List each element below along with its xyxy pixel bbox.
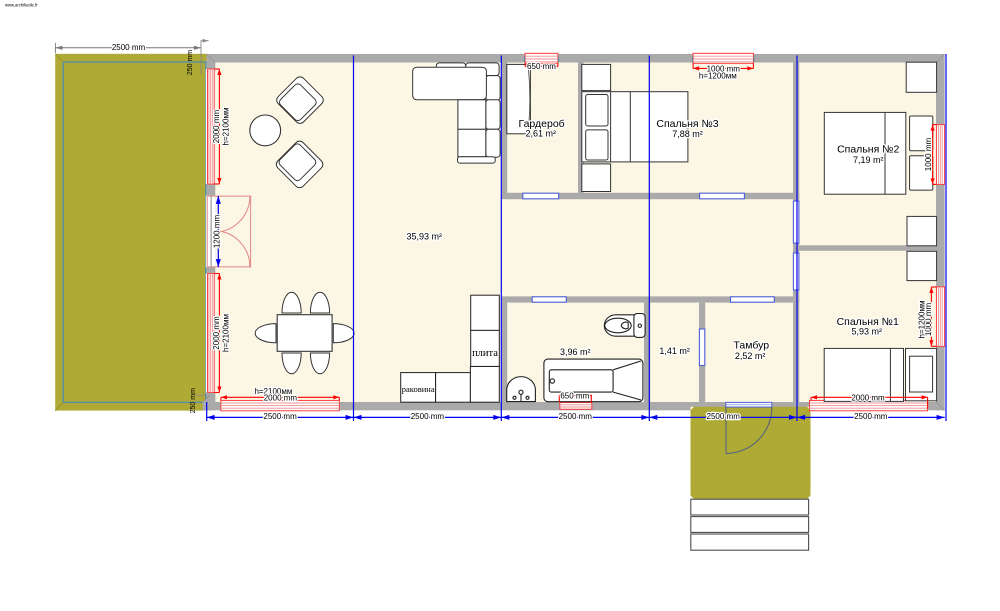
svg-text:Спальня №2: Спальня №2 — [837, 144, 899, 156]
svg-text:Спальня №3: Спальня №3 — [656, 118, 718, 130]
svg-text:1000 mm: 1000 mm — [924, 137, 933, 171]
svg-text:2500 mm: 2500 mm — [411, 412, 445, 421]
svg-text:h=1200мм: h=1200мм — [918, 301, 927, 339]
svg-text:2500 mm: 2500 mm — [112, 43, 146, 52]
svg-text:7,88 m²: 7,88 m² — [672, 129, 703, 139]
svg-text:1,41 m²: 1,41 m² — [659, 346, 690, 356]
svg-text:1200 mm: 1200 mm — [213, 214, 222, 248]
svg-text:2000 mm: 2000 mm — [212, 316, 221, 350]
svg-text:2500 mm: 2500 mm — [707, 412, 741, 421]
svg-text:650 mm: 650 mm — [527, 62, 556, 71]
svg-text:2000 mm: 2000 mm — [264, 394, 298, 403]
svg-text:35,93 m²: 35,93 m² — [407, 231, 443, 241]
svg-text:h=2100мм: h=2100мм — [221, 314, 230, 352]
svg-text:5,93 m²: 5,93 m² — [852, 326, 883, 336]
svg-text:h=1200мм: h=1200мм — [699, 72, 737, 81]
svg-text:2,52 m²: 2,52 m² — [735, 351, 766, 361]
svg-text:плита: плита — [472, 348, 498, 359]
svg-text:2500 mm: 2500 mm — [559, 412, 593, 421]
svg-text:2500 mm: 2500 mm — [263, 412, 297, 421]
svg-text:Тамбур: Тамбур — [733, 340, 769, 352]
svg-text:7,19 m²: 7,19 m² — [853, 155, 884, 165]
svg-text:2,61 m²: 2,61 m² — [526, 129, 557, 139]
svg-text:250 mm: 250 mm — [187, 50, 194, 75]
svg-text:раковина: раковина — [402, 384, 435, 394]
svg-text:650 mm: 650 mm — [560, 392, 589, 401]
svg-text:250 mm: 250 mm — [190, 388, 197, 413]
svg-text:2000 mm: 2000 mm — [212, 109, 221, 143]
svg-text:h=2100мм: h=2100мм — [221, 108, 230, 146]
svg-text:2500 mm: 2500 mm — [854, 412, 888, 421]
svg-text:3,96 m²: 3,96 m² — [560, 347, 591, 357]
svg-text:2000 mm: 2000 mm — [851, 394, 885, 403]
svg-text:www.archifacile.fr: www.archifacile.fr — [5, 3, 38, 8]
